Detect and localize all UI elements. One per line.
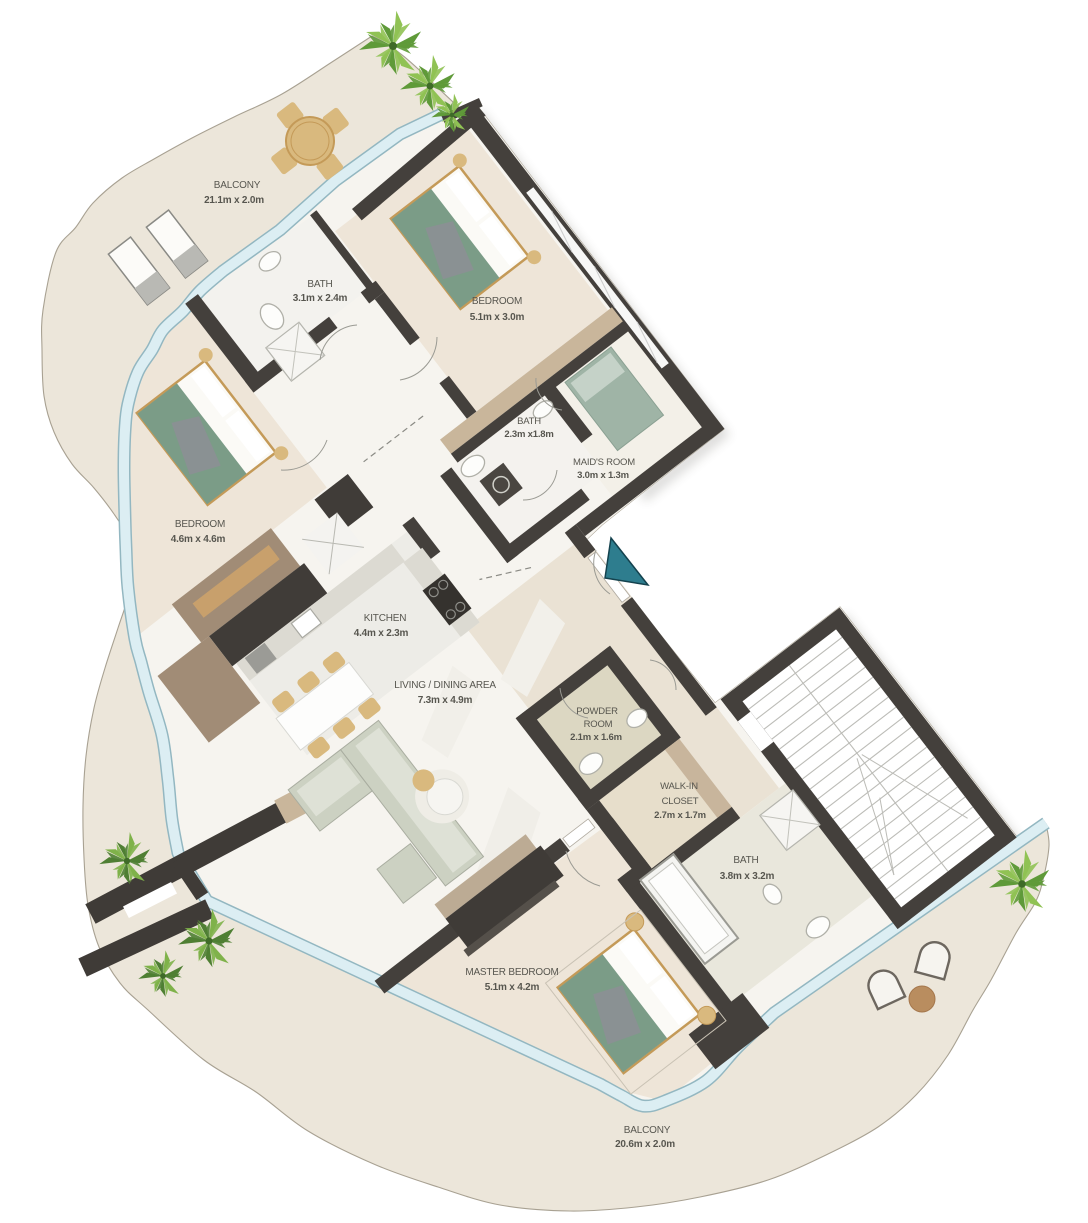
- svg-text:BEDROOM: BEDROOM: [472, 296, 522, 307]
- svg-text:BATH: BATH: [307, 279, 332, 290]
- svg-text:7.3m x 4.9m: 7.3m x 4.9m: [418, 695, 473, 706]
- svg-text:MAID'S ROOM: MAID'S ROOM: [573, 457, 635, 468]
- svg-text:BATH: BATH: [517, 416, 541, 427]
- svg-text:LIVING / DINING AREA: LIVING / DINING AREA: [394, 680, 496, 691]
- svg-text:3.8m x 3.2m: 3.8m x 3.2m: [720, 871, 775, 882]
- svg-text:4.6m x 4.6m: 4.6m x 4.6m: [171, 534, 226, 545]
- svg-text:2.7m x 1.7m: 2.7m x 1.7m: [654, 810, 706, 821]
- svg-text:WALK-IN: WALK-IN: [660, 781, 698, 792]
- svg-text:20.6m x 2.0m: 20.6m x 2.0m: [615, 1139, 675, 1150]
- svg-text:BATH: BATH: [733, 855, 758, 866]
- svg-text:CLOSET: CLOSET: [662, 796, 699, 807]
- svg-text:21.1m x 2.0m: 21.1m x 2.0m: [204, 195, 264, 206]
- svg-text:BEDROOM: BEDROOM: [175, 519, 225, 530]
- svg-text:2.3m x1.8m: 2.3m x1.8m: [504, 429, 553, 440]
- svg-text:ROOM: ROOM: [584, 719, 613, 730]
- svg-text:3.1m x 2.4m: 3.1m x 2.4m: [293, 293, 348, 304]
- svg-text:BALCONY: BALCONY: [624, 1125, 671, 1136]
- svg-text:BALCONY: BALCONY: [214, 180, 261, 191]
- svg-text:2.1m x 1.6m: 2.1m x 1.6m: [570, 732, 622, 743]
- svg-text:5.1m x 3.0m: 5.1m x 3.0m: [470, 312, 525, 323]
- svg-text:MASTER BEDROOM: MASTER BEDROOM: [465, 967, 558, 978]
- svg-text:3.0m x 1.3m: 3.0m x 1.3m: [577, 470, 629, 481]
- svg-text:KITCHEN: KITCHEN: [364, 613, 407, 624]
- svg-text:4.4m x 2.3m: 4.4m x 2.3m: [354, 628, 409, 639]
- svg-text:POWDER: POWDER: [576, 706, 618, 717]
- svg-text:5.1m x 4.2m: 5.1m x 4.2m: [485, 982, 540, 993]
